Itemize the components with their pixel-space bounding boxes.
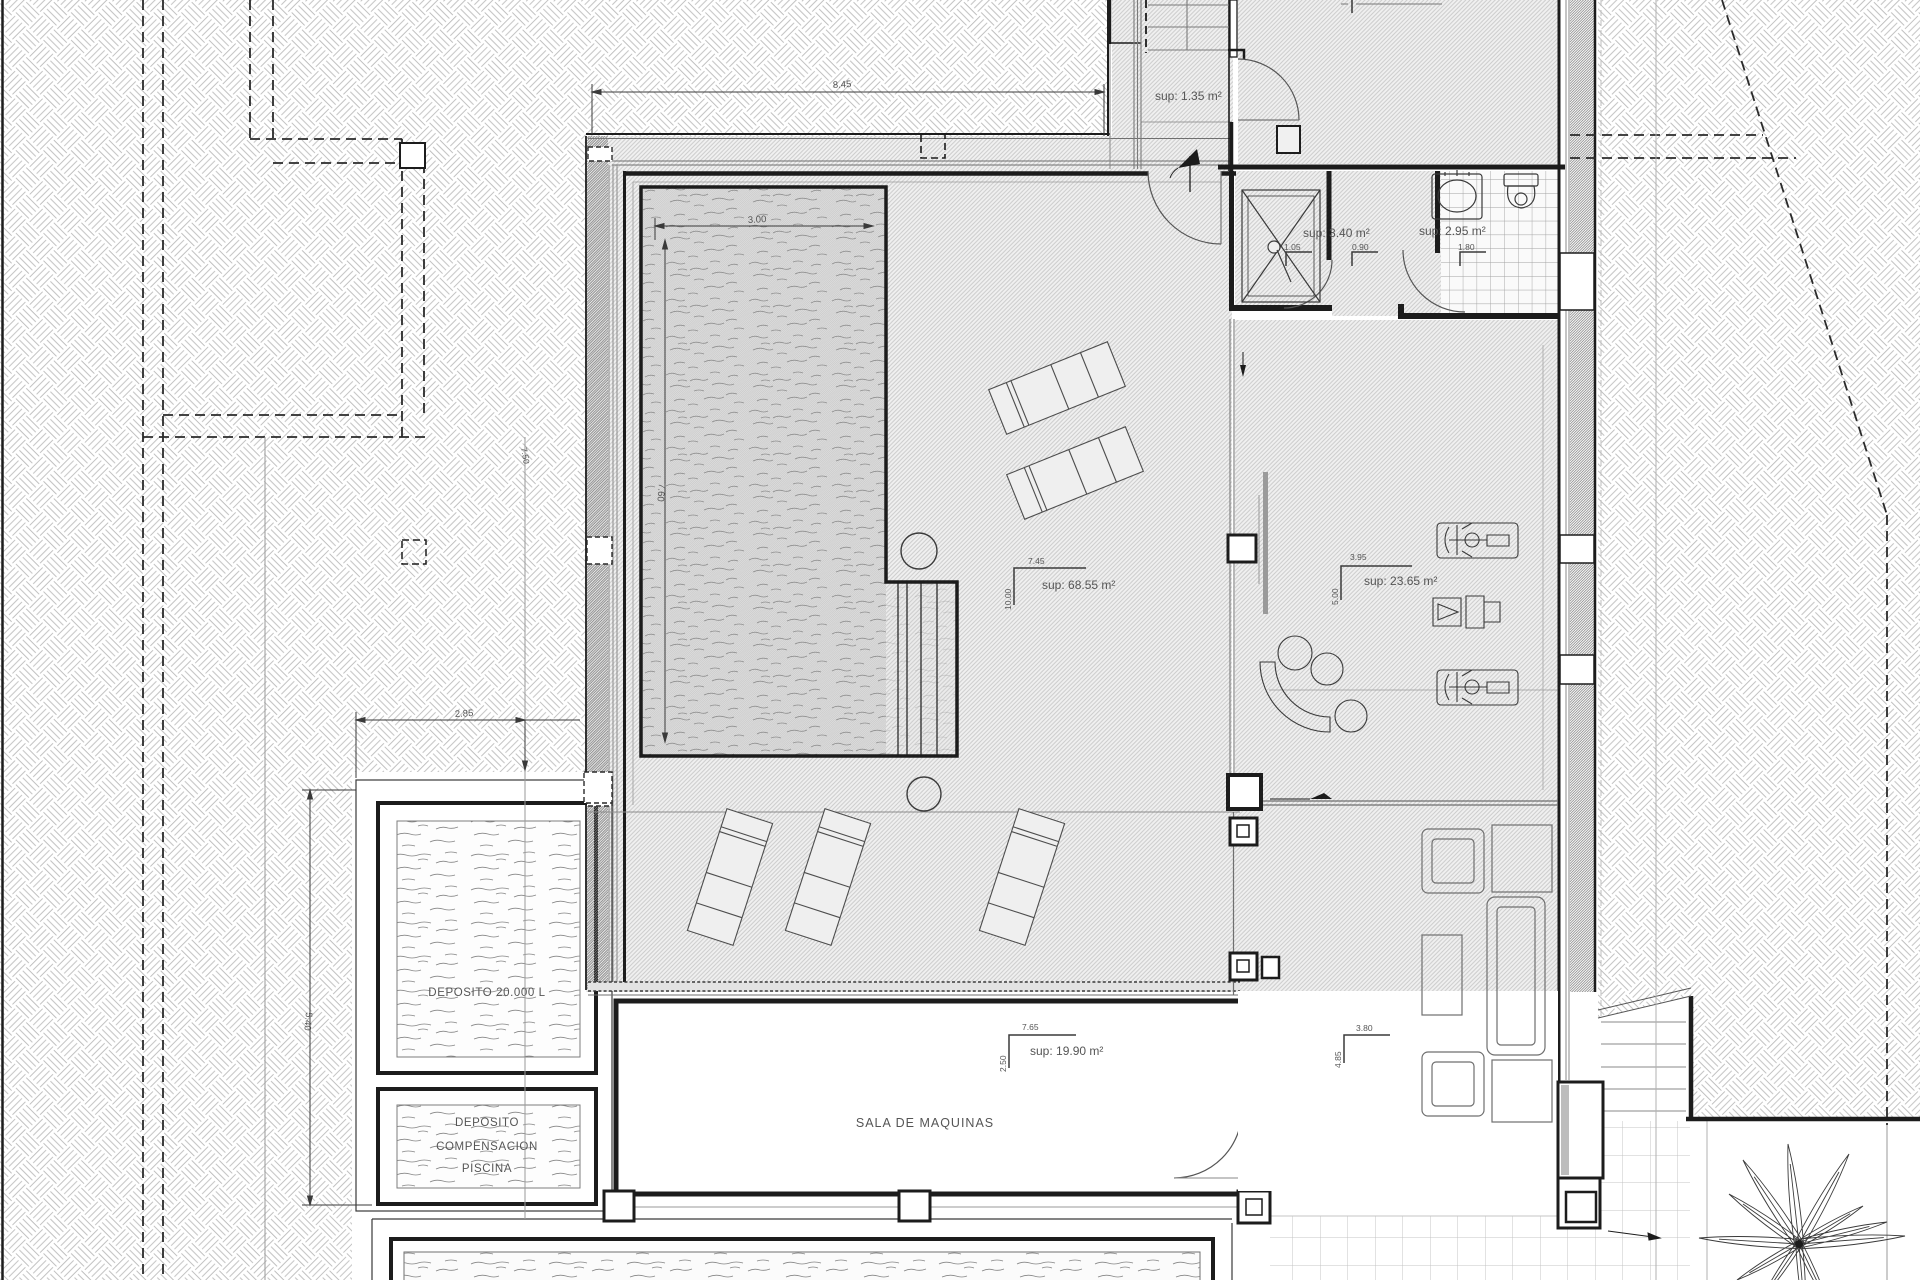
svg-text:sup: 3.40 m²: sup: 3.40 m² bbox=[1303, 226, 1370, 240]
svg-text:3.00: 3.00 bbox=[748, 214, 767, 226]
svg-text:DEPOSITO: DEPOSITO bbox=[455, 1117, 519, 1129]
svg-text:5.00: 5.00 bbox=[1330, 588, 1340, 605]
svg-text:SALA DE MAQUINAS: SALA DE MAQUINAS bbox=[856, 1116, 994, 1130]
svg-text:3.80: 3.80 bbox=[1356, 1023, 1373, 1033]
svg-text:4.85: 4.85 bbox=[1333, 1051, 1343, 1068]
svg-text:sup: 23.65 m²: sup: 23.65 m² bbox=[1364, 574, 1437, 588]
svg-text:sup: 1.35 m²: sup: 1.35 m² bbox=[1155, 89, 1222, 103]
svg-text:5.40: 5.40 bbox=[301, 1012, 314, 1031]
svg-text:DEPOSITO 20.000 L: DEPOSITO 20.000 L bbox=[428, 987, 545, 999]
svg-text:sup: 19.90 m²: sup: 19.90 m² bbox=[1030, 1044, 1103, 1058]
svg-text:7.60: 7.60 bbox=[654, 483, 667, 502]
svg-text:sup: 68.55 m²: sup: 68.55 m² bbox=[1042, 578, 1115, 592]
svg-text:sup: 2.95 m²: sup: 2.95 m² bbox=[1419, 224, 1486, 238]
svg-text:10.00: 10.00 bbox=[1003, 588, 1013, 610]
svg-text:8.45: 8.45 bbox=[833, 79, 852, 91]
svg-text:7.65: 7.65 bbox=[1022, 1022, 1039, 1032]
svg-text:2.50: 2.50 bbox=[998, 1055, 1008, 1072]
svg-text:3.95: 3.95 bbox=[1350, 552, 1367, 562]
svg-text:1.80: 1.80 bbox=[1458, 242, 1475, 252]
svg-text:COMPENSACION: COMPENSACION bbox=[436, 1141, 538, 1153]
svg-text:1.05: 1.05 bbox=[1284, 242, 1301, 252]
svg-text:7.45: 7.45 bbox=[1028, 556, 1045, 566]
svg-text:2.85: 2.85 bbox=[455, 708, 474, 720]
svg-text:0.90: 0.90 bbox=[1352, 242, 1369, 252]
svg-text:PISCINA: PISCINA bbox=[462, 1163, 512, 1175]
